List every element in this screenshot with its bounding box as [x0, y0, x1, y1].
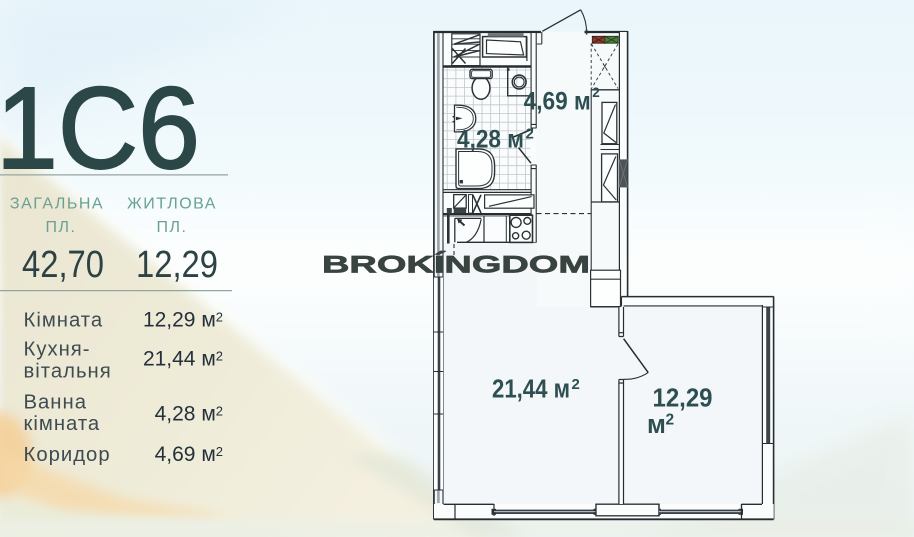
svg-text:2: 2: [666, 412, 675, 429]
svg-text:BROKÍNGDOM: BROKÍNGDOM: [322, 251, 590, 279]
svg-text:21,44 м2: 21,44 м2: [143, 348, 223, 371]
svg-text:12,29: 12,29: [653, 385, 713, 413]
svg-text:2: 2: [592, 85, 600, 100]
svg-text:2: 2: [526, 126, 534, 143]
svg-text:42,70: 42,70: [22, 244, 104, 286]
svg-text:Кухня-: Кухня-: [24, 339, 91, 361]
svg-text:21,44 м: 21,44 м: [492, 374, 570, 404]
svg-text:4,69 м: 4,69 м: [524, 88, 591, 116]
svg-text:12,29 м2: 12,29 м2: [143, 309, 223, 332]
svg-text:Коридор: Коридор: [24, 444, 111, 466]
svg-text:м: м: [647, 411, 666, 439]
svg-text:1С6: 1С6: [0, 63, 200, 193]
svg-text:ЗАГАЛЬНА: ЗАГАЛЬНА: [10, 196, 104, 213]
svg-text:2: 2: [572, 376, 580, 393]
svg-text:Ванна: Ванна: [24, 392, 88, 414]
svg-text:ЖИТЛОВА: ЖИТЛОВА: [127, 196, 217, 213]
svg-text:x: x: [603, 61, 608, 71]
svg-text:4,69 м2: 4,69 м2: [155, 443, 223, 466]
svg-text:4,28 м2: 4,28 м2: [155, 403, 223, 426]
svg-text:ПЛ.: ПЛ.: [157, 219, 188, 236]
svg-text:вітальня: вітальня: [24, 361, 112, 383]
svg-text:ПЛ.: ПЛ.: [46, 219, 77, 236]
svg-text:4,28 м: 4,28 м: [457, 126, 524, 154]
svg-text:Кімната: Кімната: [24, 310, 104, 332]
svg-text:кімната: кімната: [24, 413, 101, 435]
svg-text:12,29: 12,29: [136, 244, 218, 286]
